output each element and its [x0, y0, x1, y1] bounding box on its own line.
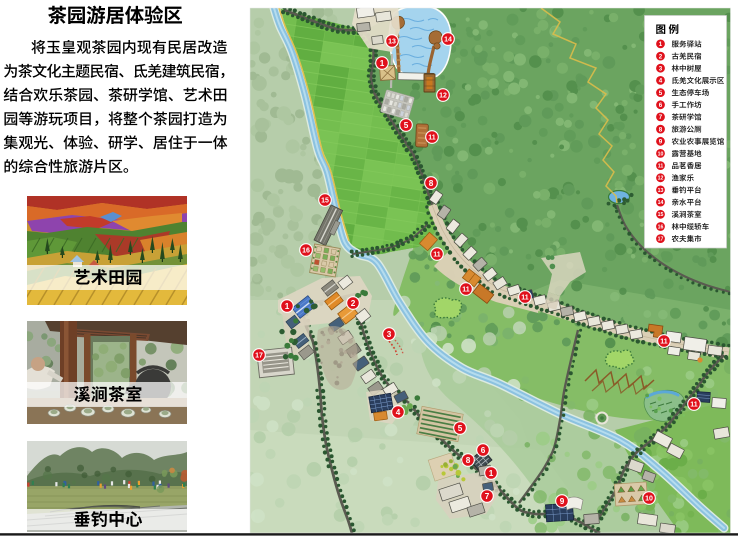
svg-text:8: 8	[659, 126, 663, 133]
svg-text:1: 1	[285, 302, 290, 311]
svg-text:12: 12	[658, 176, 664, 182]
svg-text:11: 11	[660, 339, 668, 346]
svg-text:7: 7	[485, 492, 490, 501]
svg-text:11: 11	[462, 287, 470, 294]
svg-text:2: 2	[351, 299, 356, 308]
svg-text:13: 13	[388, 39, 396, 46]
svg-text:2: 2	[659, 53, 663, 60]
svg-text:9: 9	[659, 139, 663, 146]
svg-text:1: 1	[380, 59, 385, 68]
svg-text:5: 5	[404, 121, 409, 130]
svg-text:11: 11	[521, 295, 529, 302]
svg-text:6: 6	[481, 446, 486, 455]
svg-text:8: 8	[429, 179, 434, 188]
svg-text:14: 14	[444, 37, 452, 44]
svg-text:10: 10	[645, 496, 653, 503]
svg-text:4: 4	[659, 78, 663, 85]
svg-text:5: 5	[659, 90, 663, 97]
svg-text:16: 16	[658, 224, 664, 230]
svg-text:8: 8	[466, 456, 471, 465]
svg-text:15: 15	[658, 212, 664, 218]
svg-text:16: 16	[302, 248, 310, 255]
svg-text:13: 13	[658, 188, 664, 194]
svg-text:3: 3	[387, 330, 392, 339]
svg-text:7: 7	[659, 114, 663, 121]
svg-text:1: 1	[489, 469, 494, 478]
svg-text:4: 4	[396, 408, 401, 417]
svg-text:10: 10	[658, 151, 664, 157]
svg-text:6: 6	[659, 102, 663, 109]
svg-text:9: 9	[560, 497, 565, 506]
svg-text:17: 17	[658, 237, 664, 243]
svg-text:3: 3	[659, 66, 663, 73]
svg-text:17: 17	[255, 353, 263, 360]
svg-text:15: 15	[321, 198, 329, 205]
svg-text:11: 11	[690, 402, 698, 409]
svg-text:11: 11	[428, 135, 436, 142]
svg-text:11: 11	[433, 252, 441, 259]
svg-text:12: 12	[439, 93, 447, 100]
svg-text:14: 14	[658, 200, 664, 206]
svg-text:11: 11	[658, 164, 664, 170]
svg-text:1: 1	[659, 41, 663, 48]
svg-text:5: 5	[458, 424, 463, 433]
